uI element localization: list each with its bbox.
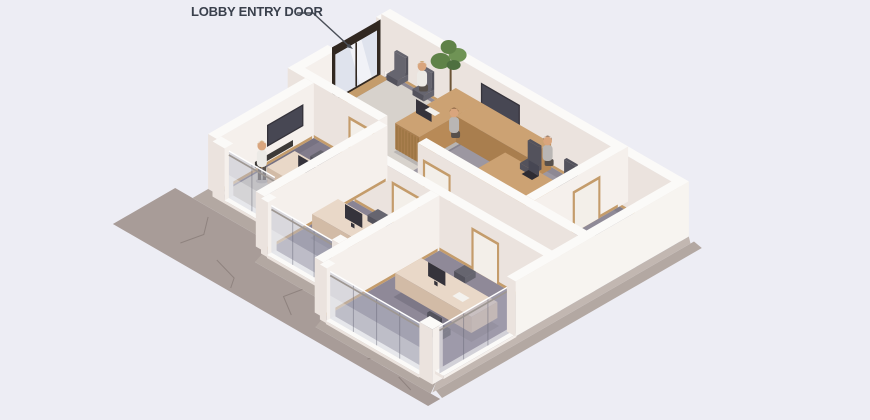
floor-plan-stage: LOBBY ENTRY DOOR (0, 0, 870, 420)
person-torso (543, 145, 553, 161)
facade-pier-sw (320, 265, 327, 324)
facade-pier-sw (213, 142, 225, 204)
meeting-chair-back-se (539, 146, 542, 166)
plant-foliage (447, 60, 461, 70)
person-torso (417, 71, 427, 87)
person-torso (257, 150, 267, 167)
person-head (257, 142, 266, 151)
scene-root (113, 9, 702, 406)
person-head (543, 137, 552, 146)
isometric-floor-plan (0, 0, 870, 420)
person-head (418, 62, 427, 71)
waiting-chair-back-se (406, 57, 409, 77)
facade-corner-post-sw (419, 322, 432, 385)
facade-pier-sw (261, 199, 268, 258)
wall-right-exterior-sw (507, 277, 516, 337)
annotation-lobby-entry-door: LOBBY ENTRY DOOR (191, 4, 323, 19)
person-torso (449, 117, 459, 133)
waiting-chair-back-se (432, 72, 435, 92)
person-head (450, 109, 459, 118)
plant-foliage (441, 40, 457, 54)
